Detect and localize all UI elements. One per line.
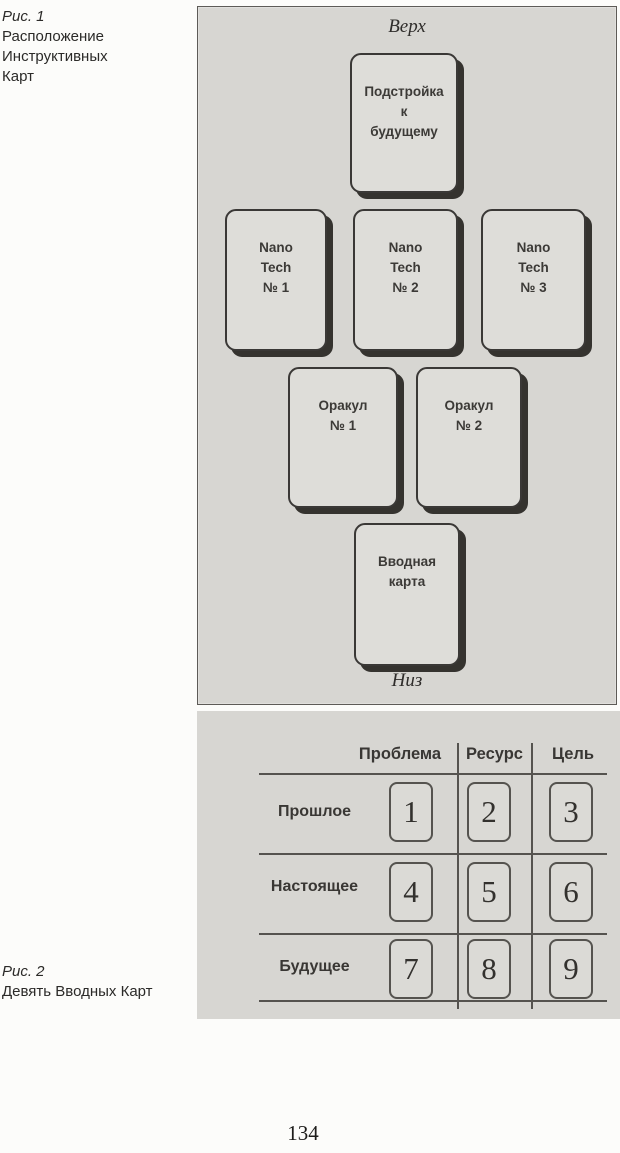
figure1-caption: Рис. 1 Расположение Инструктивных Карт [2, 7, 192, 87]
card-intro-text: Вводная карта [378, 525, 436, 664]
figure2-caption-label: Рис. 2 [2, 962, 192, 982]
top-orientation-label: Верх [198, 16, 616, 38]
figure2-caption: Рис. 2 Девять Вводных Карт [2, 962, 192, 1002]
number-card-6: 6 [549, 862, 593, 922]
card-tuning-to-future: Подстройка к будущему [350, 53, 458, 193]
table-vertical-line [531, 743, 533, 1009]
figure1-diagram-panel: Верх Подстройка к будущему Nano Tech № 1… [197, 6, 617, 705]
card-oracle-1: Оракул № 1 [288, 367, 398, 508]
figure1-caption-text: Расположение Инструктивных Карт [2, 28, 108, 85]
figure1-caption-label: Рис. 1 [2, 7, 192, 27]
card-nano-tech-1: Nano Tech № 1 [225, 209, 327, 351]
column-header-resource: Ресурс [459, 745, 530, 764]
card-oracle-2-text: Оракул № 2 [445, 369, 494, 506]
figure2-caption-text: Девять Вводных Карт [2, 983, 153, 1000]
number-card-4: 4 [389, 862, 433, 922]
card-oracle-1-text: Оракул № 1 [319, 369, 368, 506]
row-label-future: Будущее [237, 958, 392, 976]
card-nano-tech-3-text: Nano Tech № 3 [517, 211, 551, 349]
page-number: 134 [0, 1121, 606, 1146]
card-oracle-2: Оракул № 2 [416, 367, 522, 508]
table-horizontal-line [259, 933, 607, 935]
card-nano-tech-3: Nano Tech № 3 [481, 209, 586, 351]
card-nano-tech-1-text: Nano Tech № 1 [259, 211, 293, 349]
table-horizontal-line [259, 773, 607, 775]
number-card-3: 3 [549, 782, 593, 842]
number-card-1: 1 [389, 782, 433, 842]
card-nano-tech-2-text: Nano Tech № 2 [389, 211, 423, 349]
card-tuning-to-future-text: Подстройка к будущему [364, 55, 443, 191]
row-label-past: Прошлое [237, 803, 392, 821]
table-horizontal-line [259, 1000, 607, 1002]
table-vertical-line [457, 743, 459, 1009]
number-card-5: 5 [467, 862, 511, 922]
column-header-goal: Цель [533, 745, 613, 764]
row-label-present: Настоящее [237, 878, 392, 896]
number-card-2: 2 [467, 782, 511, 842]
table-horizontal-line [259, 853, 607, 855]
card-intro: Вводная карта [354, 523, 460, 666]
number-card-9: 9 [549, 939, 593, 999]
figure2-table-panel: Проблема Ресурс Цель Прошлое Настоящее Б… [197, 711, 620, 1019]
bottom-orientation-label: Низ [198, 670, 616, 692]
number-card-8: 8 [467, 939, 511, 999]
card-nano-tech-2: Nano Tech № 2 [353, 209, 458, 351]
column-header-problem: Проблема [344, 745, 456, 764]
number-card-7: 7 [389, 939, 433, 999]
